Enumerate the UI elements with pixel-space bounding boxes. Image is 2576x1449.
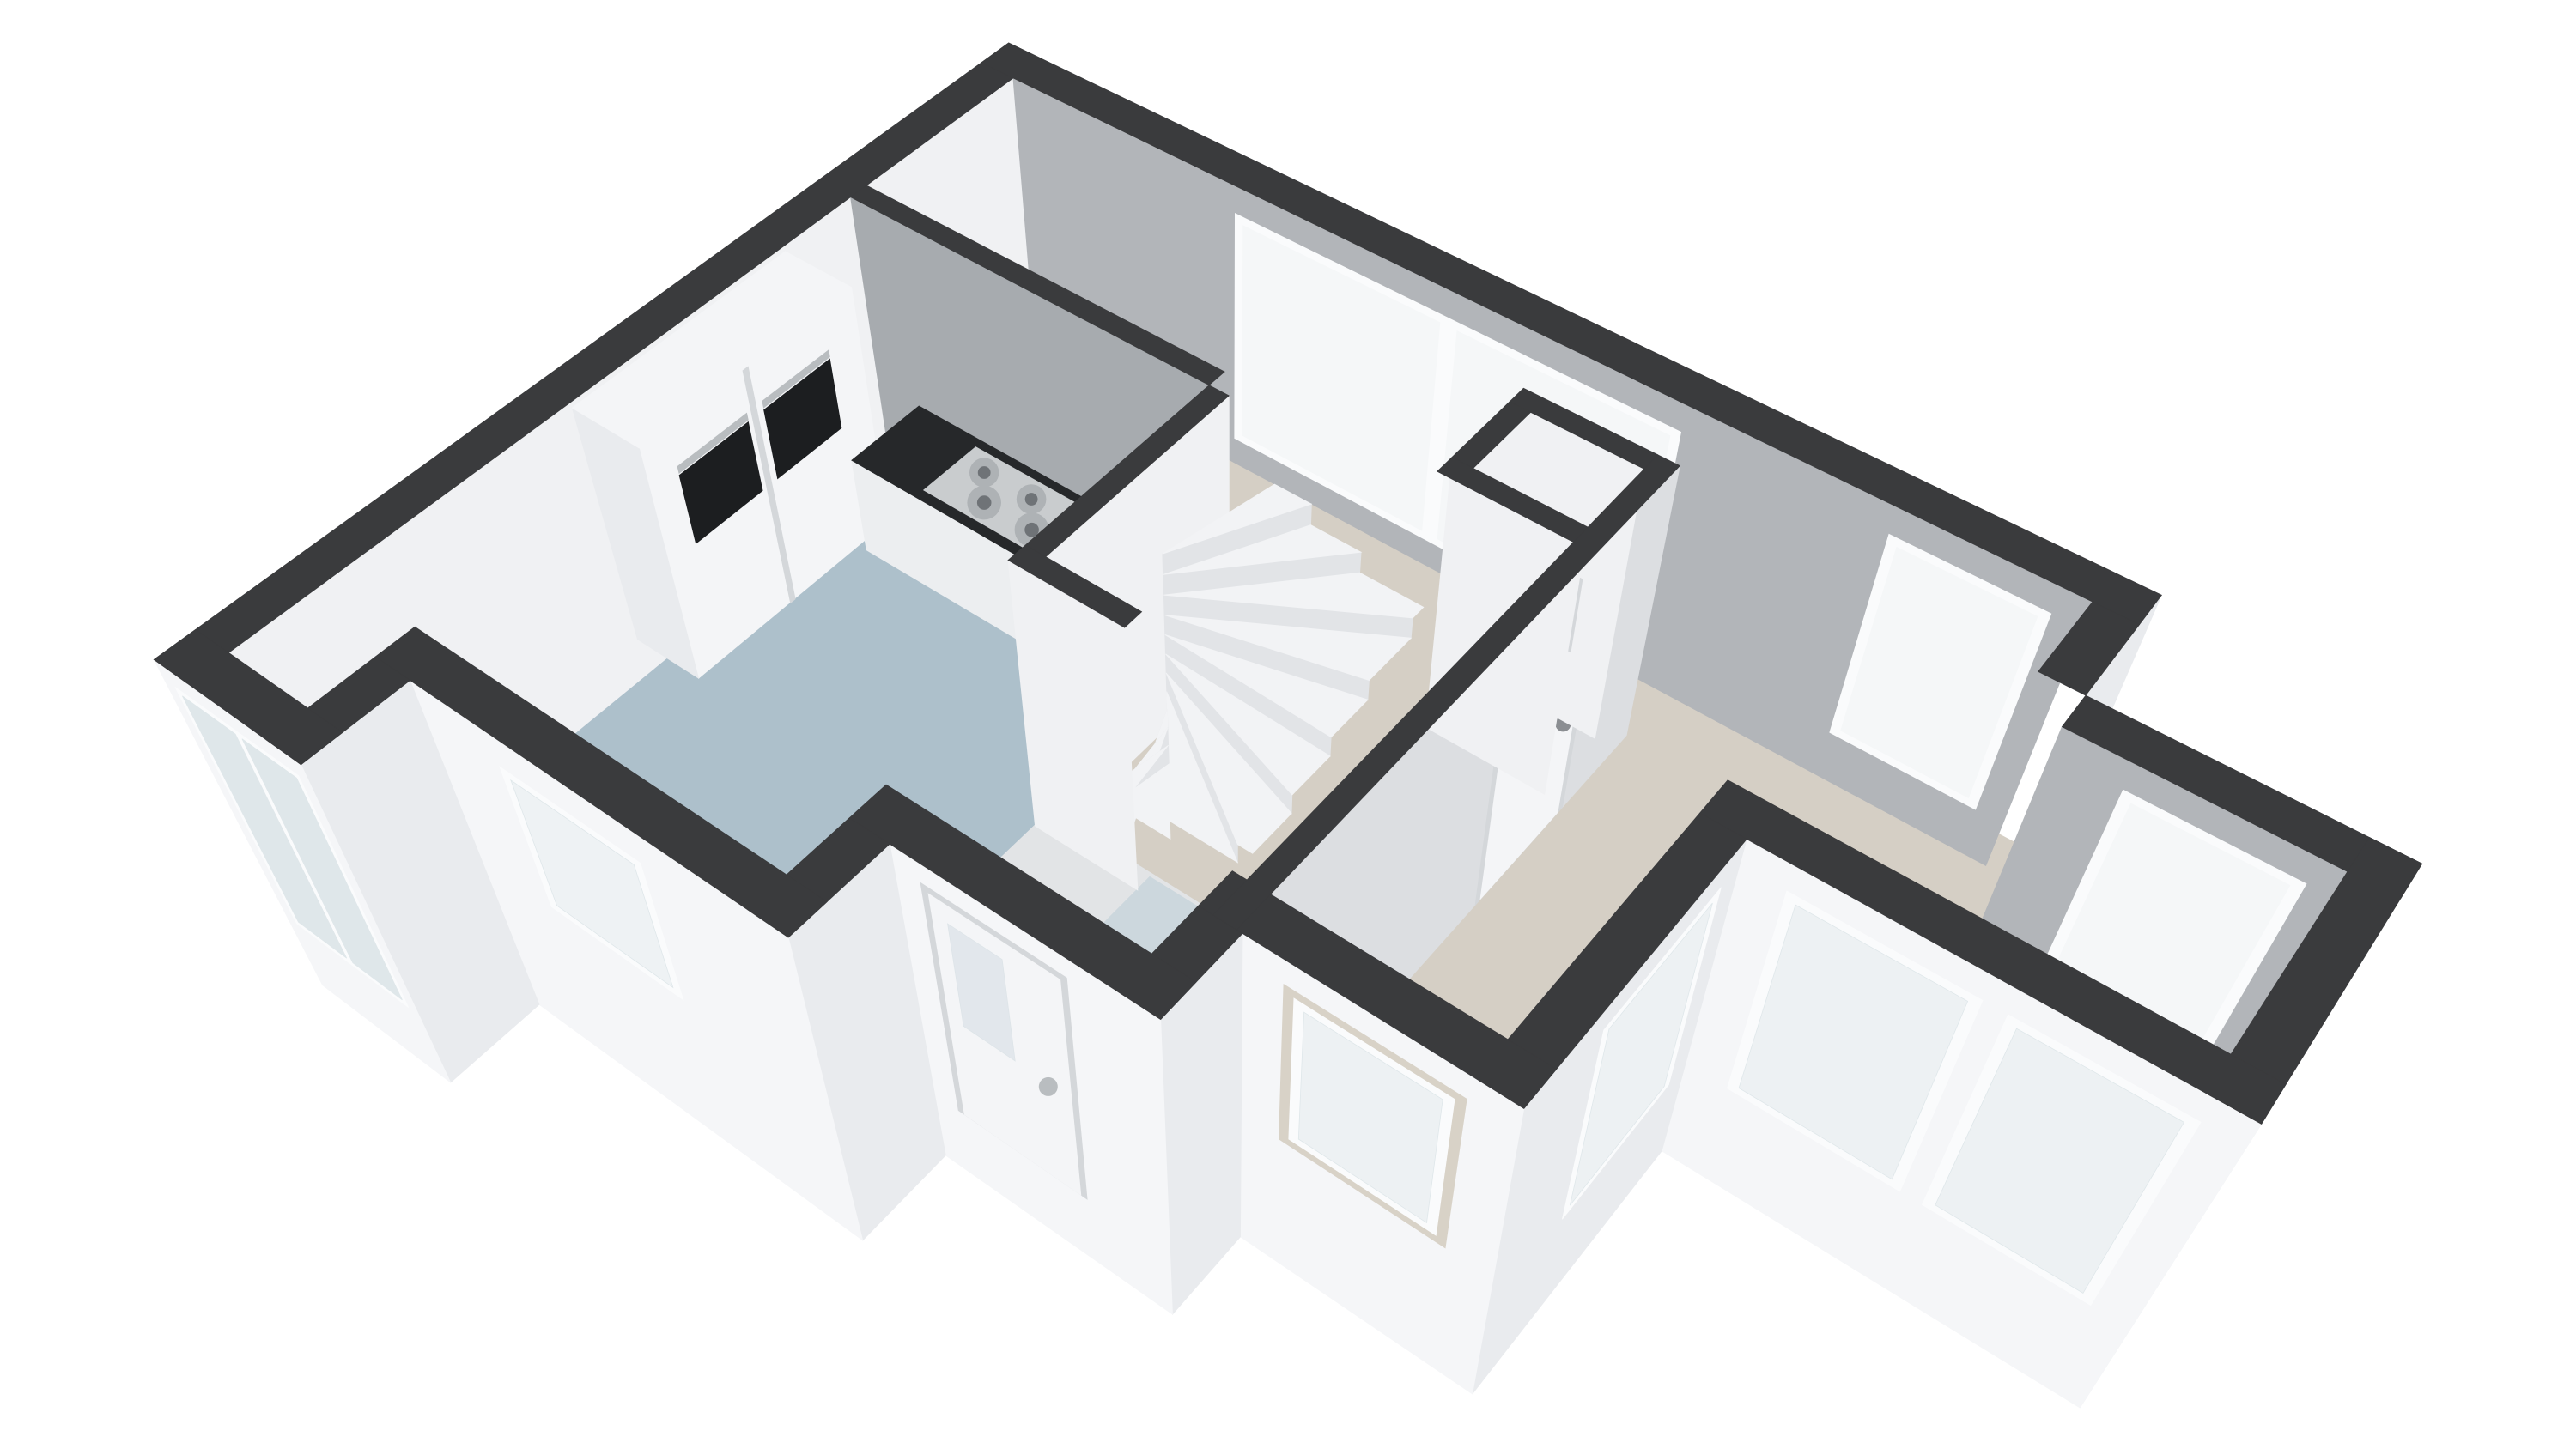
cooktop-burner-cap: [1025, 493, 1038, 506]
cooktop-burner-cap: [1024, 523, 1039, 537]
cooktop-burner-cap: [978, 466, 991, 479]
cooktop-burner-cap: [977, 495, 992, 510]
front-door-handle: [1039, 1077, 1058, 1096]
floorplan-viewport: [0, 0, 2576, 1449]
floorplan-3d-render: [0, 0, 2576, 1449]
